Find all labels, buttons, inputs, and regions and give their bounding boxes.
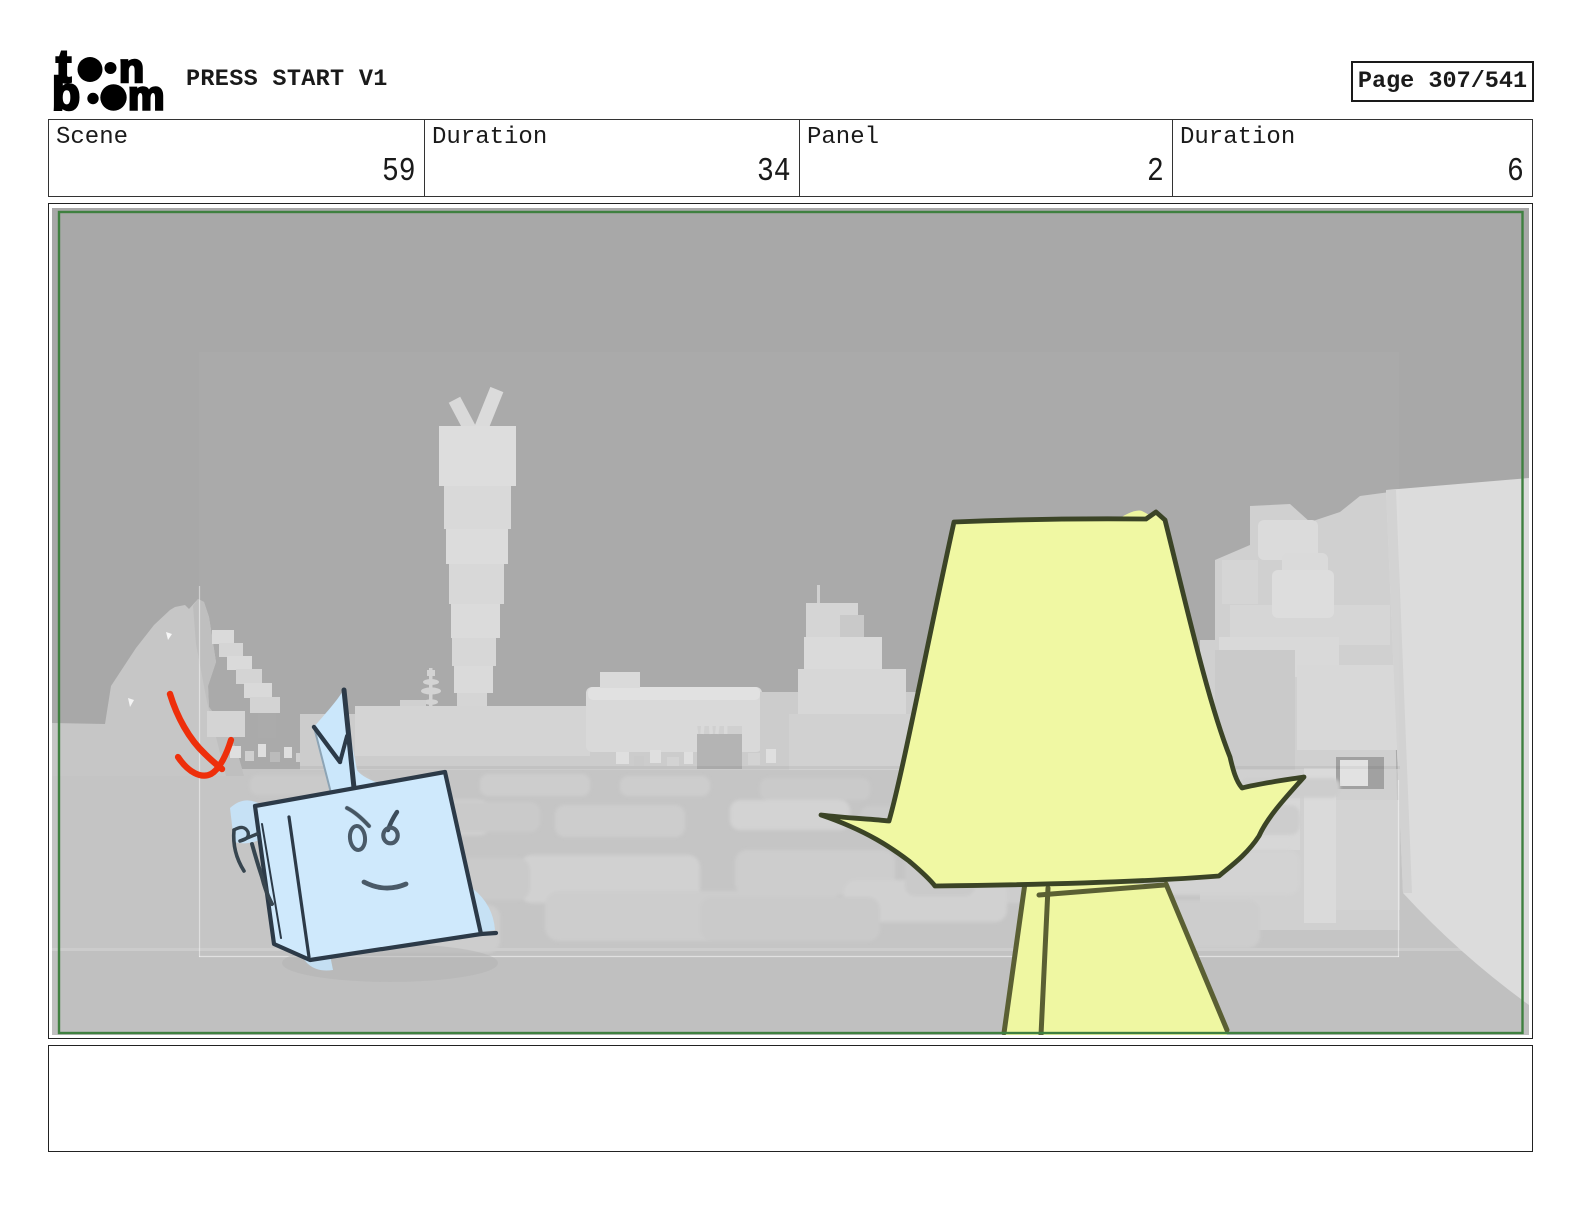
svg-text:m: m xyxy=(128,73,164,117)
svg-text:b: b xyxy=(52,68,80,117)
